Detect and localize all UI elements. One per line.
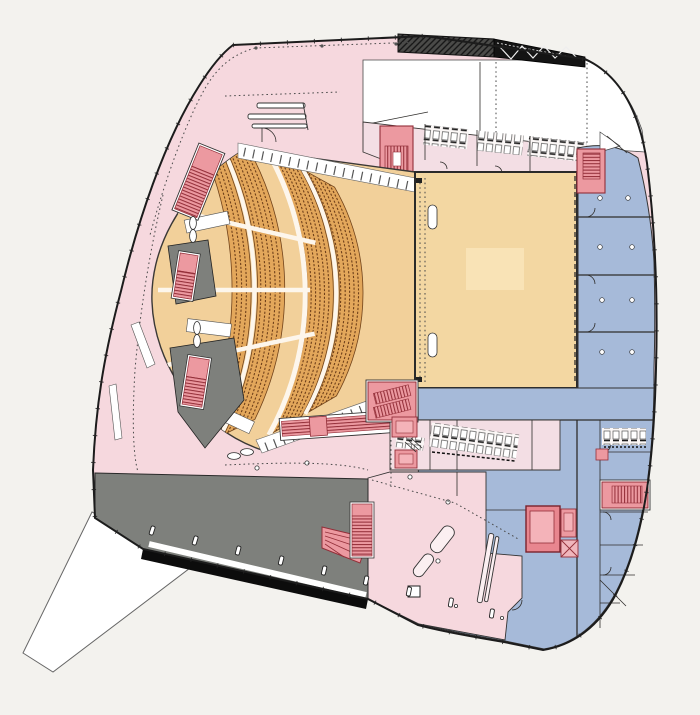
stair-core-stage-left [366, 380, 418, 422]
entry-ramp-bars [248, 103, 308, 130]
toilet-stalls-east [602, 428, 646, 445]
stage-lift-inset [466, 248, 524, 290]
south-red-rooms [526, 506, 578, 557]
stair-core-east [577, 149, 605, 193]
stage-platform [415, 172, 577, 388]
vomitory-wedge-1 [168, 240, 216, 304]
stage-pier-lower [428, 333, 437, 357]
terrace-stair-west [350, 502, 374, 558]
floor-plan-figure [0, 0, 700, 715]
stage-pier-upper [428, 205, 437, 229]
floor-plan-svg [0, 0, 700, 715]
